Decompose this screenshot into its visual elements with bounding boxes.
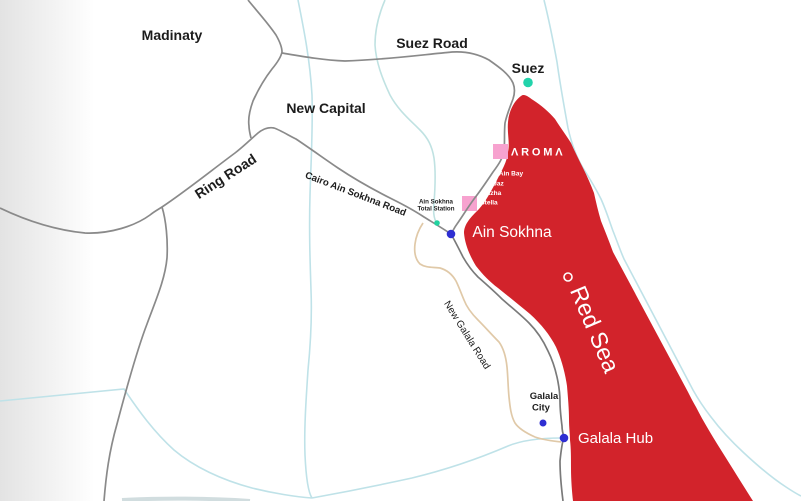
svg-text:City: City [532, 403, 551, 414]
svg-text:Azha: Azha [486, 190, 502, 197]
svg-text:Suez Road: Suez Road [396, 35, 468, 51]
svg-text:Jaz: Jaz [493, 181, 504, 188]
svg-text:Stella: Stella [480, 200, 498, 207]
svg-text:Ain Sokhna: Ain Sokhna [419, 199, 454, 206]
svg-text:Suez: Suez [512, 60, 545, 76]
svg-text:New Galala Road: New Galala Road [441, 299, 492, 371]
svg-text:Ain Sokhna: Ain Sokhna [472, 224, 552, 241]
svg-text:Ring Road: Ring Road [192, 150, 259, 202]
svg-text:Galala: Galala [530, 391, 559, 402]
svg-text:Total Station: Total Station [417, 206, 454, 213]
svg-text:ΛROMΛ: ΛROMΛ [511, 147, 565, 159]
svg-text:Madinaty: Madinaty [142, 27, 203, 43]
svg-text:Ain Bay: Ain Bay [499, 171, 524, 178]
svg-text:New Capital: New Capital [286, 100, 365, 116]
svg-text:Cairo Ain Sokhna Road: Cairo Ain Sokhna Road [303, 170, 407, 219]
svg-text:Galala Hub: Galala Hub [578, 430, 653, 447]
